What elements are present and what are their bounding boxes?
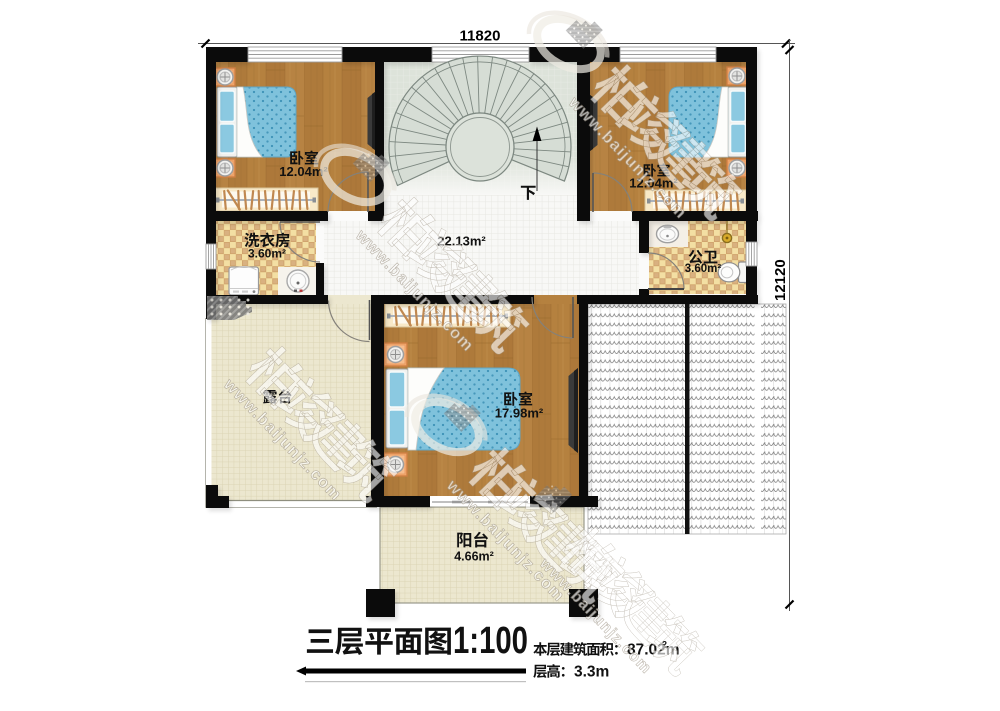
svg-text:3.60m²: 3.60m² bbox=[248, 247, 286, 261]
svg-text:4.66m²: 4.66m² bbox=[454, 549, 494, 563]
svg-text:12120: 12120 bbox=[772, 259, 789, 301]
svg-text:3.3m: 3.3m bbox=[574, 664, 609, 681]
svg-text:11820: 11820 bbox=[460, 28, 501, 45]
svg-text:3.60m²: 3.60m² bbox=[685, 263, 722, 275]
svg-text:17.98m²: 17.98m² bbox=[495, 406, 544, 421]
svg-text:1:100: 1:100 bbox=[453, 620, 528, 662]
